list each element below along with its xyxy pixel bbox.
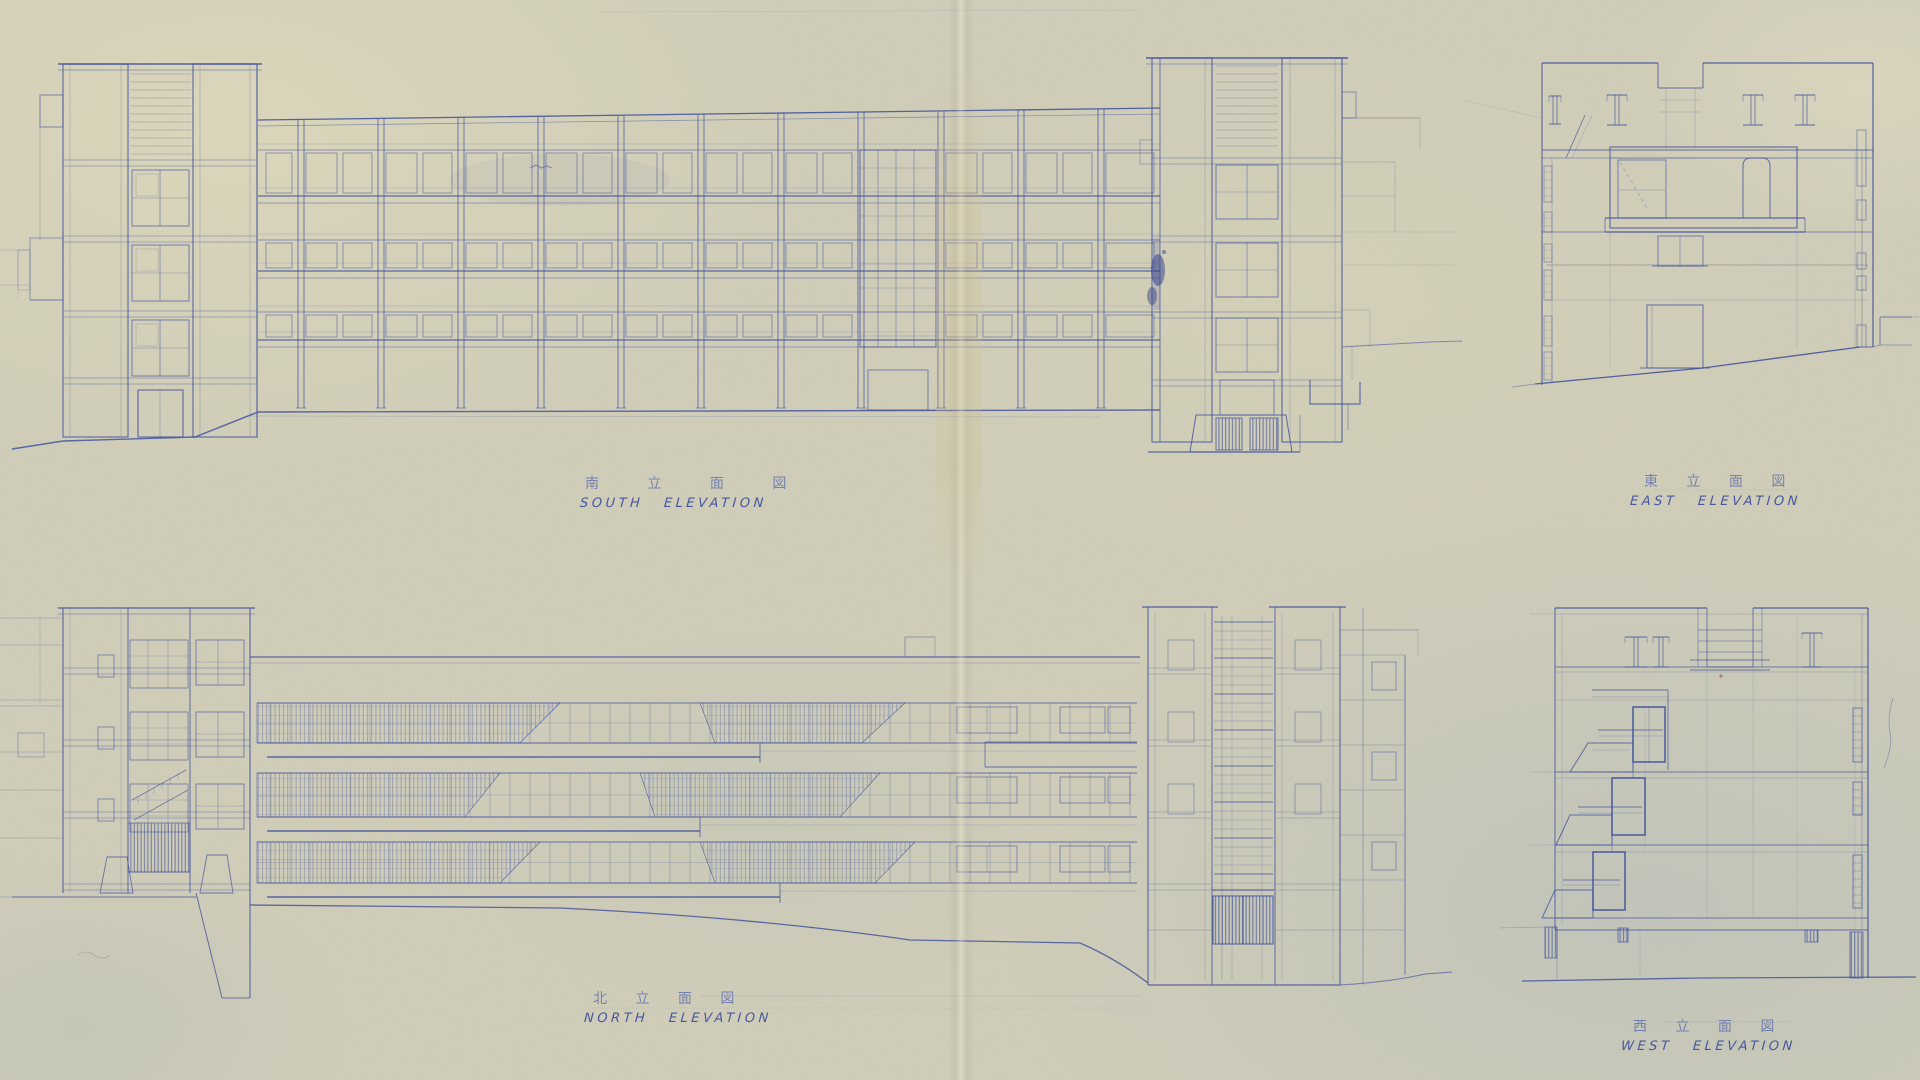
east-elevation-label-en: EAST ELEVATION [1629, 494, 1801, 509]
west-elevation-label-en: WEST ELEVATION [1620, 1039, 1796, 1054]
east-elevation-caption: 東 立 面 図 EAST ELEVATION [1630, 471, 1801, 509]
west-elevation-label-jp: 西 立 面 図 [1621, 1016, 1796, 1036]
blueprint-sheet: 南 立 面 図 SOUTH ELEVATION 東 立 面 図 EAST ELE… [0, 0, 1920, 1080]
north-elevation-caption: 北 立 面 図 NORTH ELEVATION [584, 988, 772, 1026]
south-elevation-caption: 南 立 面 図 SOUTH ELEVATION [580, 473, 808, 511]
east-elevation-label-jp: 東 立 面 図 [1630, 471, 1801, 491]
north-elevation-label-en: NORTH ELEVATION [583, 1011, 772, 1026]
south-elevation-label-en: SOUTH ELEVATION [579, 496, 808, 511]
north-elevation-label-jp: 北 立 面 図 [584, 988, 772, 1008]
south-elevation-label-jp: 南 立 面 図 [580, 473, 808, 493]
paper-grain-texture [0, 0, 1920, 1080]
west-elevation-caption: 西 立 面 図 WEST ELEVATION [1621, 1016, 1796, 1054]
blueprint-canvas [0, 0, 1920, 1080]
